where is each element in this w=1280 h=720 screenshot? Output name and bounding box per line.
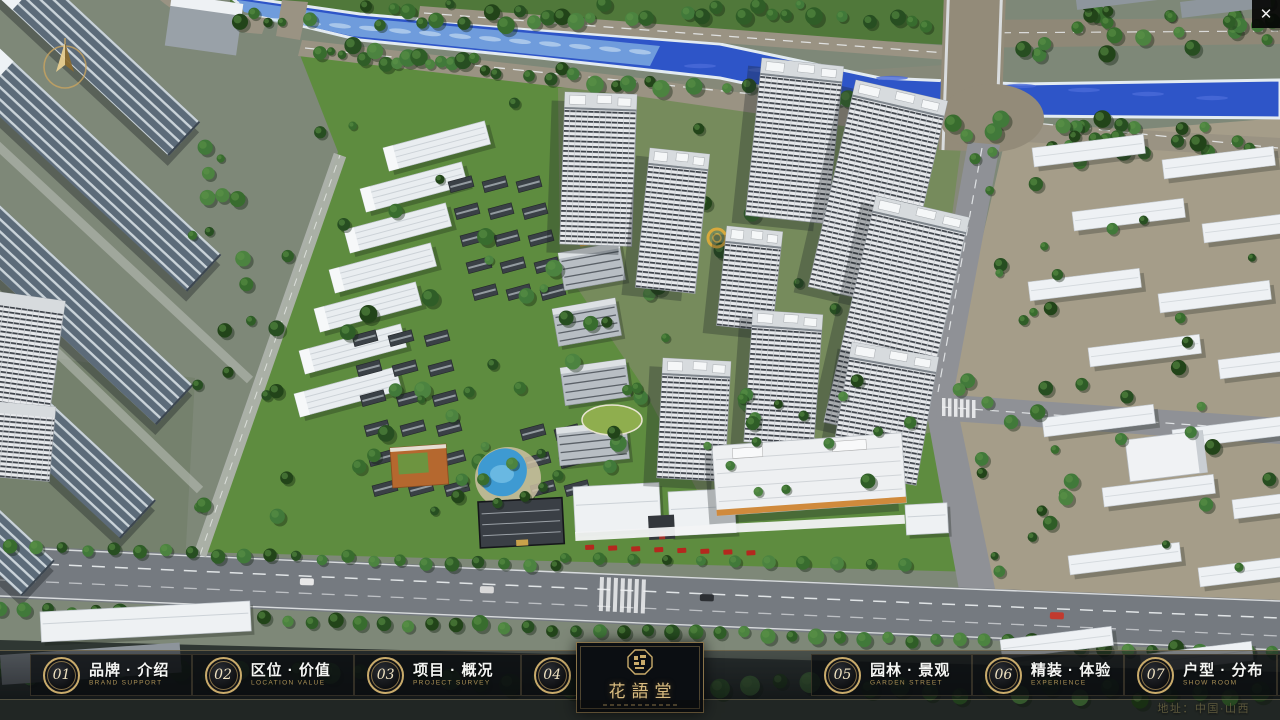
nav-item-brand[interactable]: 01 品牌 · 介绍BRAND SUPPORT	[30, 654, 192, 696]
nav-sublabel: LOCATION VALUE	[251, 679, 325, 687]
nav-sublabel: EXPERIENCE	[1031, 679, 1097, 687]
project-name: 花語堂	[609, 677, 678, 702]
nav-badge-07: 07	[1137, 657, 1174, 694]
nav-item-garden[interactable]: 05 园林 · 景观GARDEN STREET	[811, 654, 972, 696]
nav-item-floorplan[interactable]: 07 户型 · 分布SHOW ROOM	[1124, 654, 1276, 696]
nav-label: 品牌 · 介绍	[89, 662, 179, 679]
nav-sublabel: SHOW ROOM	[1183, 679, 1249, 687]
nav-badge-01: 01	[43, 657, 80, 694]
nav-item-interior[interactable]: 06 精装 · 体验EXPERIENCE	[972, 654, 1124, 696]
nav-badge-05: 05	[824, 657, 861, 694]
nav-label: 项目 · 概况	[413, 662, 508, 679]
nav-badge-04: 04	[534, 657, 571, 694]
nav-sublabel: PROJECT SURVEY	[413, 679, 491, 687]
nav-item-location[interactable]: 02 区位 · 价值LOCATION VALUE	[192, 654, 355, 696]
masterplan-screen: ✕ 01 品牌 · 介绍BRAND SUPPORT 02 区位 · 价值LOCA…	[0, 0, 1280, 720]
nav-label: 户型 · 分布	[1183, 662, 1263, 679]
nav-item-project[interactable]: 03 项目 · 概况PROJECT SURVEY	[354, 654, 521, 696]
nav-badge-06: 06	[985, 657, 1022, 694]
close-button[interactable]: ✕	[1252, 0, 1280, 28]
nav-badge-03: 03	[367, 657, 404, 694]
bottom-shade	[0, 700, 1280, 720]
close-icon: ✕	[1260, 5, 1273, 23]
seal-emblem-icon	[627, 649, 653, 675]
aerial-masterplan-map[interactable]	[0, 0, 1280, 720]
nav-label: 区位 · 价值	[251, 662, 342, 679]
nav-sublabel: BRAND SUPPORT	[89, 679, 162, 687]
nav-badge-02: 02	[205, 657, 242, 694]
nav-label: 精装 · 体验	[1031, 662, 1111, 679]
nav-label: 园林 · 景观	[870, 662, 959, 679]
nav-item-view[interactable]: 08 一房 · 一景COMMUNITY	[1277, 654, 1280, 696]
nav-sublabel: GARDEN STREET	[870, 679, 943, 687]
compass-icon	[34, 34, 96, 96]
